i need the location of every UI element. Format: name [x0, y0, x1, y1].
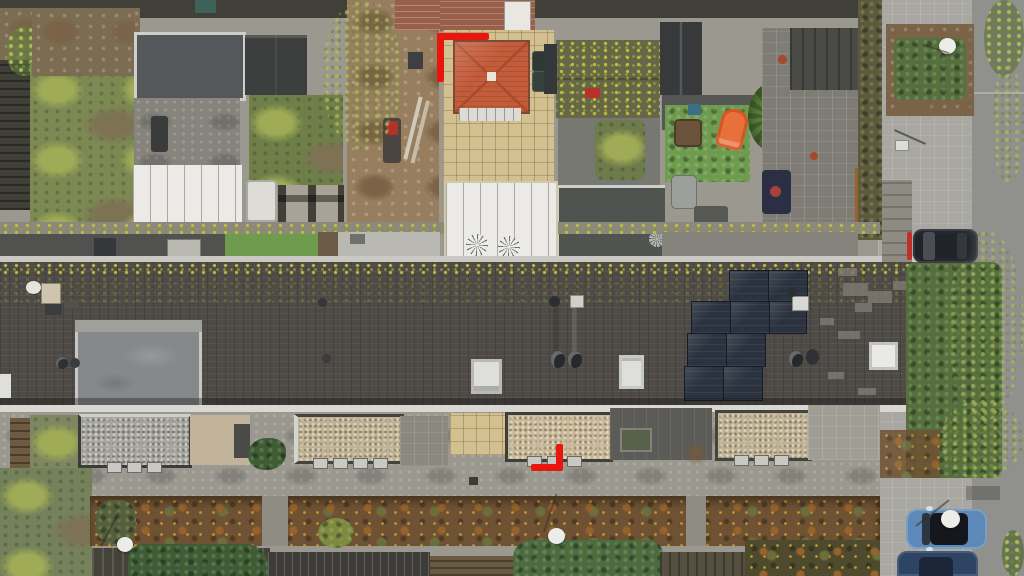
backyard-divider	[318, 232, 338, 258]
street-lamp-center	[548, 528, 565, 544]
red-item-garden-f	[585, 88, 600, 98]
hedge-gap-path-1	[262, 496, 288, 546]
teal-box-top	[195, 0, 216, 13]
bottom-wood-deck	[430, 556, 520, 576]
red-bike-next-to-car	[907, 232, 912, 260]
satellite-dish	[26, 281, 41, 294]
street-sign	[896, 141, 908, 150]
skylight-center-right	[619, 355, 644, 389]
road-patch	[966, 486, 1000, 500]
car-mirror-left	[926, 506, 933, 511]
hedge-gap-path-2	[686, 496, 706, 546]
replaced-tile-patch	[843, 283, 868, 296]
replaced-tile-patch	[820, 318, 834, 325]
pergola-fan-awning-1	[466, 234, 488, 256]
roof-vent-left-a	[56, 357, 68, 369]
storage-box-gray	[672, 176, 696, 208]
chimney-items-dark	[45, 304, 62, 315]
car-roof-dark	[919, 557, 953, 576]
backyard-bin-dark	[94, 238, 116, 257]
roof-worker-items	[64, 300, 78, 308]
backyard-turf-strip	[225, 234, 318, 258]
bottom-deck-right	[660, 552, 748, 576]
vent-streak-2	[572, 307, 577, 351]
left-garden-fence	[0, 60, 30, 210]
garden-f-grass-patch	[595, 120, 645, 180]
replaced-tile-patch	[855, 303, 872, 312]
backyard-light-box	[168, 240, 200, 257]
replaced-tile-patch	[828, 372, 844, 379]
facade-windows-4	[735, 456, 788, 465]
white-back-door	[505, 2, 530, 31]
hedge-green-patch-2	[96, 500, 136, 544]
solar-panel	[692, 302, 730, 333]
chimney-block	[42, 284, 60, 303]
garden-b-patio	[134, 98, 240, 166]
roof-white-box	[793, 297, 808, 310]
barbecue-cover-logo	[770, 186, 781, 197]
outbuilding-conservatory-strip	[459, 108, 521, 121]
roof-dark-dot	[787, 287, 797, 297]
small-dormer-left-edge	[0, 374, 11, 398]
red-pot-1	[778, 55, 787, 64]
facade-windows-1	[108, 463, 161, 472]
parked-car-black	[913, 229, 978, 263]
front-yard-light-paving	[808, 405, 880, 460]
garden-f-bins	[544, 44, 557, 94]
skylight-center-left	[471, 359, 502, 394]
replaced-tile-patch	[868, 291, 892, 303]
red-pot-2	[810, 152, 818, 160]
replaced-tile-patch	[858, 388, 876, 395]
car-windshield	[923, 232, 935, 260]
solar-panel	[688, 334, 726, 366]
bay-roof-gravel-1	[78, 414, 192, 468]
bottom-slatted-roof	[268, 552, 430, 576]
summer-house-flat-roof	[134, 32, 246, 101]
vent-streak-1	[553, 307, 558, 351]
garden-c-paving	[278, 185, 344, 222]
replaced-tile-patch	[838, 331, 860, 339]
autumn-hedge-band	[90, 496, 880, 546]
tree-canopy-right-upper	[992, 64, 1024, 184]
roof-vent-pair-b	[568, 351, 582, 368]
roof-vent-pair-a	[551, 351, 565, 368]
solar-panel	[730, 271, 768, 301]
street-lamp-left	[117, 537, 133, 552]
tree-canopy-bottomright	[1002, 530, 1024, 576]
path-drain-2	[469, 477, 478, 485]
bay-roof-gravel-2	[294, 414, 404, 464]
ridge-vent-dark	[549, 296, 560, 307]
large-dormer-flat-roof	[75, 320, 202, 410]
backyard-slab-item	[350, 234, 365, 244]
white-ribbed-canopy-roof	[133, 165, 242, 222]
blue-toy-box	[688, 104, 701, 115]
property-marker-bottom-horizontal	[531, 464, 563, 471]
bay-roof-gravel-4	[715, 410, 812, 461]
front-yard-moss-1	[30, 415, 78, 470]
mossy-shed-ridge	[556, 40, 660, 118]
front-conifer-bush	[248, 438, 286, 470]
dark-shed-roof-c	[245, 35, 307, 95]
orange-roof-center-cap	[487, 72, 496, 81]
bottom-left-lawn	[0, 468, 92, 576]
construction-bin	[408, 52, 423, 69]
bottom-hedge-right	[745, 540, 880, 576]
ridge-vent-white	[571, 296, 583, 307]
roadside-hedge-brown-part	[880, 430, 940, 478]
conifer-row-left	[128, 544, 268, 576]
property-marker-top-horizontal	[437, 33, 489, 40]
backyard-paving-mid	[662, 232, 858, 258]
front-small-shrub	[684, 440, 708, 466]
street-lamp-right	[941, 510, 960, 528]
solar-panel	[724, 367, 762, 400]
aerial-photo-scene	[0, 0, 1024, 576]
roof-vent-right-a	[789, 351, 803, 367]
solar-panel	[731, 302, 769, 333]
parked-car-navy	[897, 551, 978, 576]
back-garden-lawn-1	[30, 62, 135, 228]
roof-vent-mid-left	[318, 298, 327, 307]
replaced-tile-patch	[838, 268, 857, 276]
car-rear-window	[957, 233, 967, 259]
conifer-row-center	[513, 540, 663, 576]
tree-canopy-right-lower	[940, 400, 1024, 480]
dark-shed-roof-g	[660, 22, 702, 95]
front-porch-beige-tiles	[450, 413, 505, 455]
pergola-fan-awning-2	[498, 236, 520, 258]
end-hedge-strip	[858, 0, 882, 240]
roof-vent-mid-left2	[322, 354, 331, 363]
bare-tree-canopy	[322, 0, 402, 150]
garden-b-storage-bin	[151, 116, 168, 152]
back-garden-brush-1	[32, 10, 135, 76]
white-tent-canopy	[246, 180, 277, 222]
hedge-green-patch-1	[318, 518, 354, 548]
large-dormer-top-edge	[75, 320, 202, 332]
solar-panel	[727, 334, 765, 366]
brick-wall-top-d	[395, 0, 440, 30]
facade-windows-2	[314, 459, 387, 468]
front-yard-pavers	[400, 416, 448, 466]
solar-panel	[685, 367, 723, 400]
property-marker-top-vertical	[437, 33, 444, 82]
roof-vent-left-b	[70, 358, 80, 368]
skylight-right	[869, 342, 898, 370]
front-planter-box	[622, 430, 650, 450]
roof-vent-right-b	[806, 349, 819, 365]
garden-table	[676, 121, 700, 145]
